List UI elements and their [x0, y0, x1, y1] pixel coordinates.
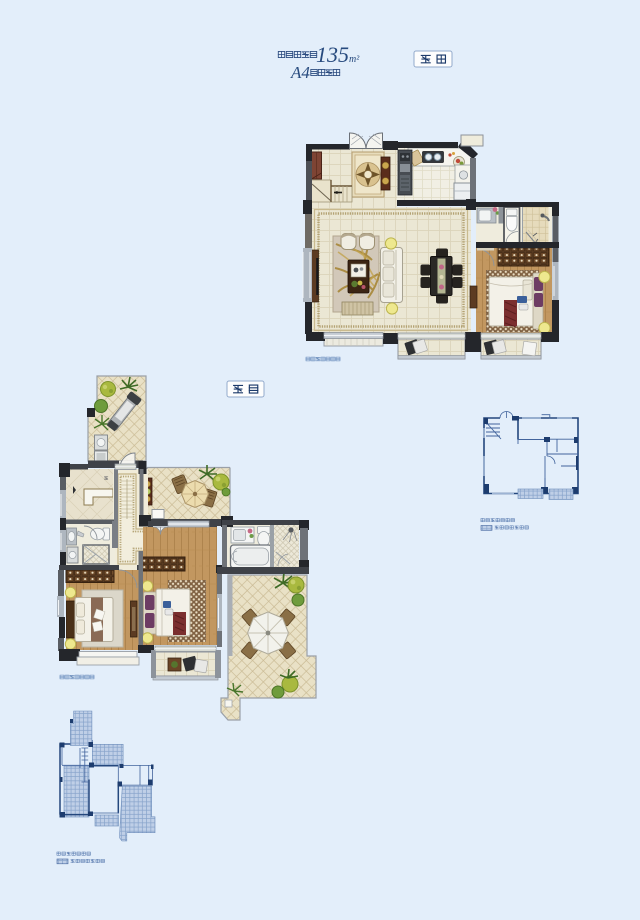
svg-text:A4: A4 — [290, 63, 310, 82]
